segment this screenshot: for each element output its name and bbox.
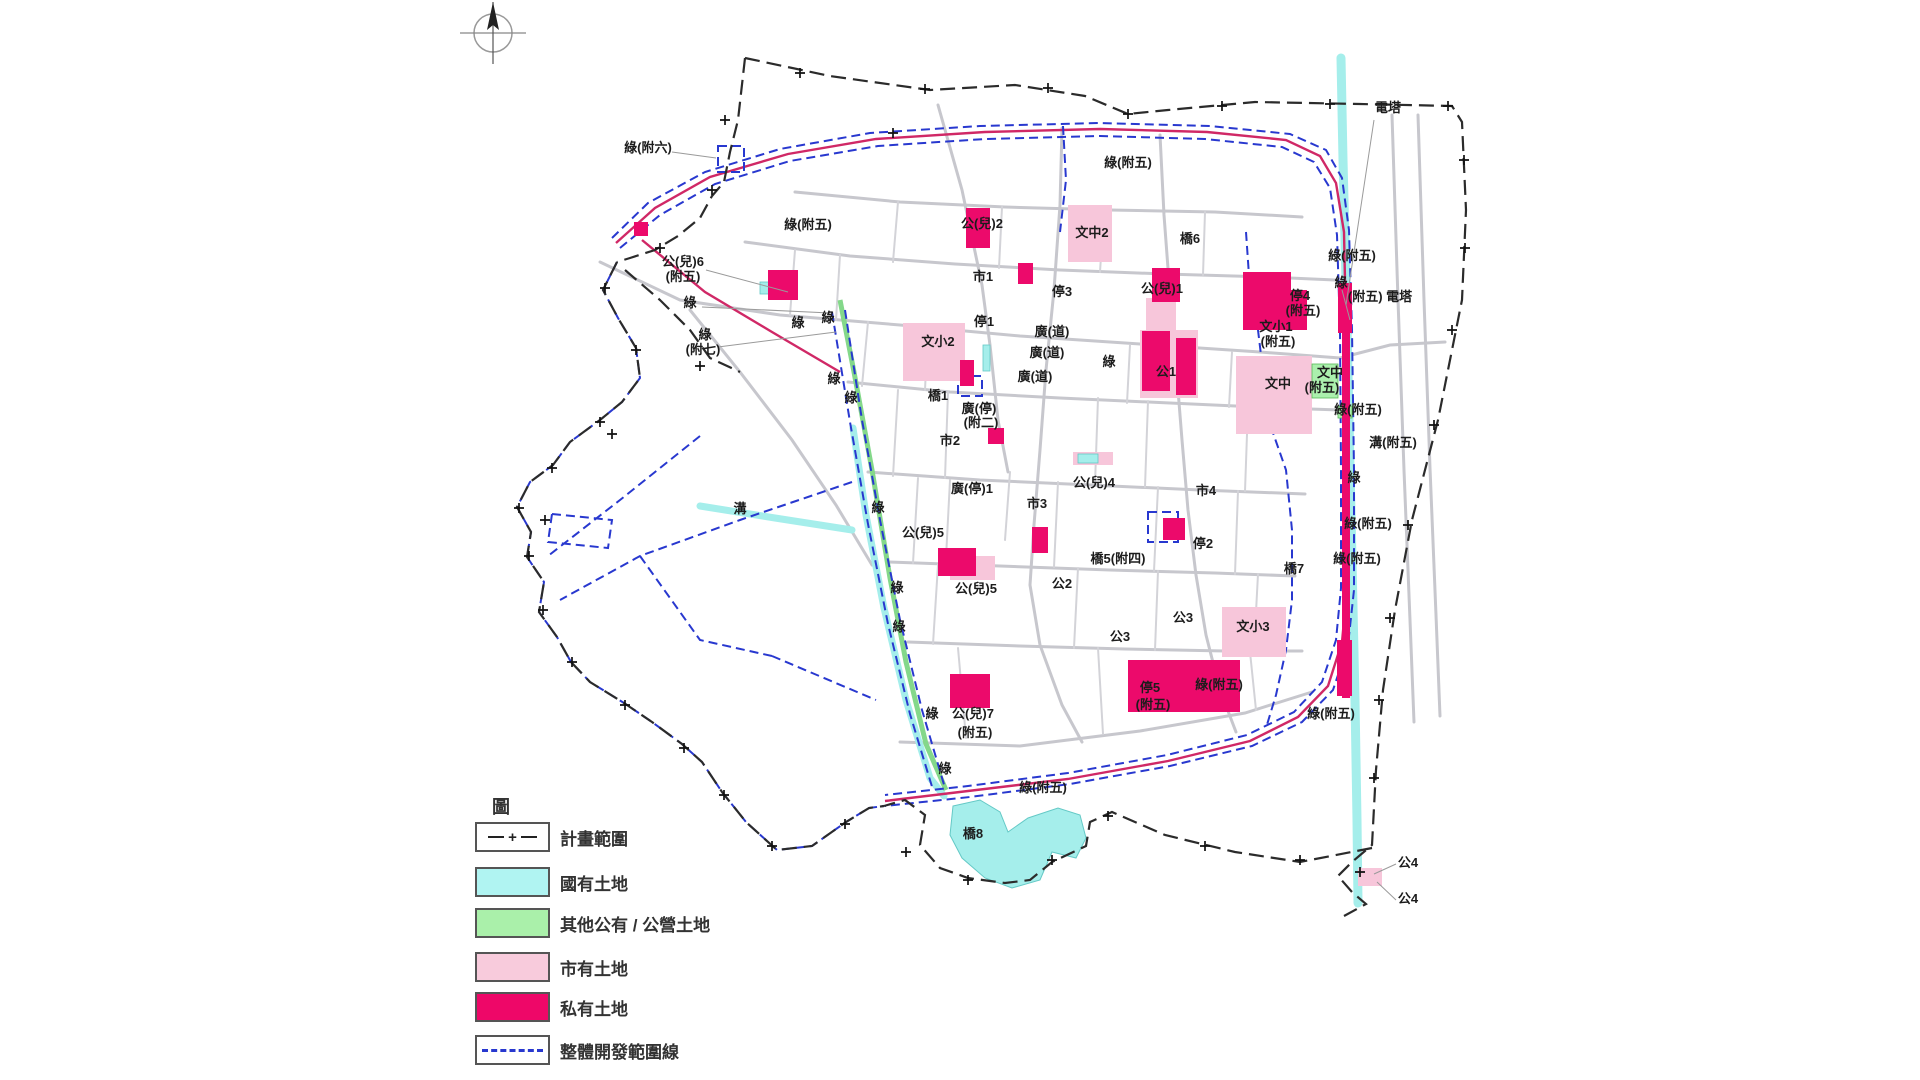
development-boundary-line (548, 514, 612, 548)
pink-land-parcel (1236, 356, 1312, 434)
boundary-tick-cross (600, 283, 610, 293)
map-label: 市3 (1027, 496, 1047, 511)
street-line (1340, 342, 1445, 358)
street-line (1392, 115, 1414, 722)
legend-row-national-land: 國有土地 (475, 867, 775, 899)
map-label: 廣(停) (962, 401, 997, 416)
map-label: 綠 (1334, 275, 1348, 290)
map-label: 市2 (940, 433, 960, 448)
map-label: 綠 (791, 315, 805, 330)
map-label: 文中 (1317, 365, 1343, 380)
map-label: 公2 (1052, 576, 1072, 591)
street-line-minor (933, 565, 938, 644)
legend-row-other-public-land: 其他公有 / 公營土地 (475, 908, 775, 940)
map-label: 綠 (683, 295, 697, 310)
map-label: 橋7 (1284, 561, 1304, 576)
boundary-tick-cross (1295, 855, 1305, 865)
boundary-tick-cross (524, 551, 534, 561)
map-label: 公4 (1398, 855, 1419, 870)
street-line-minor (893, 390, 898, 476)
development-dash-line (482, 1049, 542, 1052)
map-label: 綠 (1347, 470, 1361, 485)
boundary-tick-cross (720, 115, 730, 125)
map-label: 綠 (698, 327, 712, 342)
boundary-tick-cross (1459, 155, 1469, 165)
cyan-land-parcel (983, 345, 990, 371)
legend-label-private-land: 私有土地 (560, 995, 628, 1020)
map-label: (附五) (958, 725, 993, 740)
street-line-minor (1250, 652, 1256, 710)
map-label: 公(兒)7 (952, 706, 994, 721)
boundary-tick-cross (1200, 841, 1210, 851)
legend-label-plan-boundary: 計畫範圍 (560, 825, 628, 850)
legend-label-national-land: 國有土地 (560, 870, 628, 895)
street-line-minor (1127, 345, 1130, 403)
boundary-tick-cross (1325, 99, 1335, 109)
map-label: 電塔 (1375, 100, 1402, 115)
development-line-swatch (475, 1035, 550, 1065)
boundary-tick-cross (901, 847, 911, 857)
map-label: 橋1 (928, 388, 948, 403)
map-label: 文小2 (921, 334, 954, 349)
street-line-minor (893, 202, 898, 262)
map-label: 綠(附六) (624, 140, 672, 155)
legend-row-city-land: 市有土地 (475, 952, 775, 984)
magenta-land-parcel (634, 222, 648, 236)
map-label: 文小3 (1236, 619, 1269, 634)
boundary-tick-cross (540, 515, 550, 525)
map-label: (附五) (666, 269, 701, 284)
boundary-tick-cross (920, 84, 930, 94)
boundary-tick-cross (1443, 101, 1453, 111)
map-label: 廣(道) (1030, 345, 1065, 360)
map-label: 綠 (938, 761, 952, 776)
magenta-land-parcel (1142, 331, 1170, 391)
boundary-tick-cross (1460, 243, 1470, 253)
boundary-tick-cross (514, 503, 524, 513)
map-label: (附二) (964, 415, 999, 430)
development-boundary-line (640, 556, 772, 656)
map-label: 溝 (733, 501, 746, 516)
street-line-minor (1155, 571, 1158, 650)
map-label: 公3 (1110, 629, 1130, 644)
map-label: 綠 (890, 580, 904, 595)
map-label: 綠 (827, 371, 841, 386)
magenta-land-parcel (1018, 263, 1033, 284)
map-label: 綠(附五) (1195, 677, 1243, 692)
map-label: (附五) (1286, 303, 1321, 318)
cyan-land-parcel (1078, 454, 1098, 463)
magenta-land-parcel (938, 548, 976, 576)
map-label: 停1 (974, 314, 994, 329)
pink-land-parcel (903, 323, 965, 381)
map-label: 綠(附五) (1344, 516, 1392, 531)
magenta-land-parcel (988, 428, 1004, 444)
legend-row-development-line: 整體開發範圍線 (475, 1035, 775, 1067)
map-label: 公(兒)5 (902, 525, 944, 540)
development-boundary-line (560, 482, 852, 600)
map-label: 公(兒)2 (961, 216, 1003, 231)
map-label: 綠 (821, 310, 835, 325)
magenta-land-parcel (1176, 338, 1196, 395)
map-label: 綠(附五) (1334, 402, 1382, 417)
map-label: 綠(附五) (1104, 155, 1152, 170)
street-line-minor (946, 480, 950, 558)
map-label: 公(兒)6 (662, 254, 704, 269)
magenta-land-parcel (1032, 527, 1048, 553)
legend-label-development-line: 整體開發範圍線 (560, 1038, 679, 1063)
street-line-minor (1074, 568, 1078, 648)
boundary-tick-cross (1123, 109, 1133, 119)
pink-land-parcel (1146, 298, 1176, 332)
legend-label-city-land: 市有土地 (560, 955, 628, 980)
other-public-land-swatch (475, 908, 550, 938)
plan-boundary-swatch: + (475, 822, 550, 852)
street-line (1418, 115, 1440, 716)
map-label: 溝(附五) (1369, 435, 1417, 450)
street-line-minor (1145, 401, 1148, 487)
map-label: 橋8 (963, 826, 983, 841)
label-leader-line (1346, 120, 1374, 305)
map-label: 文中2 (1075, 225, 1108, 240)
map-label: 廣(道) (1018, 369, 1053, 384)
plan-boundary-line (625, 270, 740, 372)
map-label: 橋6 (1180, 231, 1200, 246)
street-line-minor (1098, 648, 1103, 734)
pond (950, 800, 1086, 888)
map-label: 公(兒)1 (1141, 281, 1183, 296)
magenta-land-parcel (768, 270, 798, 300)
map-label: 綠(附五) (1307, 706, 1355, 721)
development-boundary-line (548, 436, 700, 556)
street-line-minor (913, 478, 918, 563)
map-label: (附五) 電塔 (1348, 289, 1413, 304)
map-label: 停5 (1140, 680, 1160, 695)
boundary-tick-cross (1217, 101, 1227, 111)
map-label: (附五) (1305, 380, 1340, 395)
street-line-minor (862, 322, 868, 386)
map-label: 公1 (1156, 364, 1176, 379)
map-label: 綠 (892, 619, 906, 634)
map-label: 綠(附五) (1328, 248, 1376, 263)
magenta-land-parcel (1337, 640, 1352, 696)
map-label: 綠(附五) (1333, 551, 1381, 566)
street-line-minor (1154, 487, 1158, 571)
map-label: 停2 (1193, 536, 1213, 551)
map-label: 綠 (1102, 354, 1116, 369)
legend-row-plan-boundary: + 計畫範圍 (475, 822, 775, 854)
magenta-land-parcel (960, 360, 974, 386)
map-label: 市1 (973, 269, 993, 284)
map-label: 停3 (1052, 284, 1072, 299)
street-line-minor (1054, 482, 1058, 567)
map-label: 市4 (1196, 483, 1217, 498)
label-leader-line (1377, 882, 1396, 900)
magenta-land-parcel (1163, 518, 1185, 540)
street-line-minor (1203, 212, 1205, 275)
legend-row-private-land: 私有土地 (475, 992, 775, 1024)
map-label: (附五) (1136, 697, 1171, 712)
boundary-tick-cross (547, 463, 557, 473)
map-label: 綠 (871, 500, 885, 515)
boundary-tick-cross (1369, 773, 1379, 783)
boundary-tick-cross (607, 429, 617, 439)
map-label: 綠 (925, 706, 939, 721)
city-land-swatch (475, 952, 550, 982)
boundary-dash-right (521, 836, 537, 838)
canal (700, 506, 852, 530)
label-leader-line (672, 152, 716, 158)
map-label: 公(兒)5 (955, 581, 997, 596)
street-line-minor (1235, 491, 1238, 574)
street-line-minor (836, 255, 840, 320)
map-label: 文小1 (1259, 319, 1292, 334)
map-label: 停4 (1290, 288, 1311, 303)
map-label: 廣(停)1 (951, 481, 993, 496)
map-label: 公(兒)4 (1073, 475, 1116, 490)
development-boundary-line (772, 656, 876, 700)
magenta-land-parcel (950, 674, 990, 708)
map-label: 綠 (844, 390, 858, 405)
boundary-tick-cross (695, 361, 705, 371)
boundary-tick-cross (631, 345, 641, 355)
street-line-minor (1095, 398, 1098, 484)
legend-label-other-public-land: 其他公有 / 公營土地 (560, 911, 710, 936)
map-label: 綠(附五) (1019, 780, 1067, 795)
map-label: 公3 (1173, 610, 1193, 625)
map-label: 橋5(附四) (1091, 551, 1146, 566)
boundary-plus-glyph: + (508, 830, 517, 845)
map-canvas: 綠(附六)電塔綠(附五)綠(附五)公(兒)6(附五)綠綠綠綠(附七)公(兒)2文… (0, 0, 1920, 1080)
national-land-swatch (475, 867, 550, 897)
private-land-swatch (475, 992, 550, 1022)
map-label: (附七) (686, 342, 721, 357)
map-label: 綠(附五) (784, 217, 832, 232)
map-label: (附五) (1261, 334, 1296, 349)
boundary-tick-cross (679, 743, 689, 753)
map-label: 文中 (1265, 376, 1291, 391)
plan-map-page: 綠(附六)電塔綠(附五)綠(附五)公(兒)6(附五)綠綠綠綠(附七)公(兒)2文… (0, 0, 1920, 1080)
map-label: 廣(道) (1035, 324, 1070, 339)
street-line-minor (1229, 352, 1232, 407)
map-label: 公4 (1398, 891, 1419, 906)
street-line (795, 192, 1302, 217)
boundary-dash-left (488, 836, 504, 838)
